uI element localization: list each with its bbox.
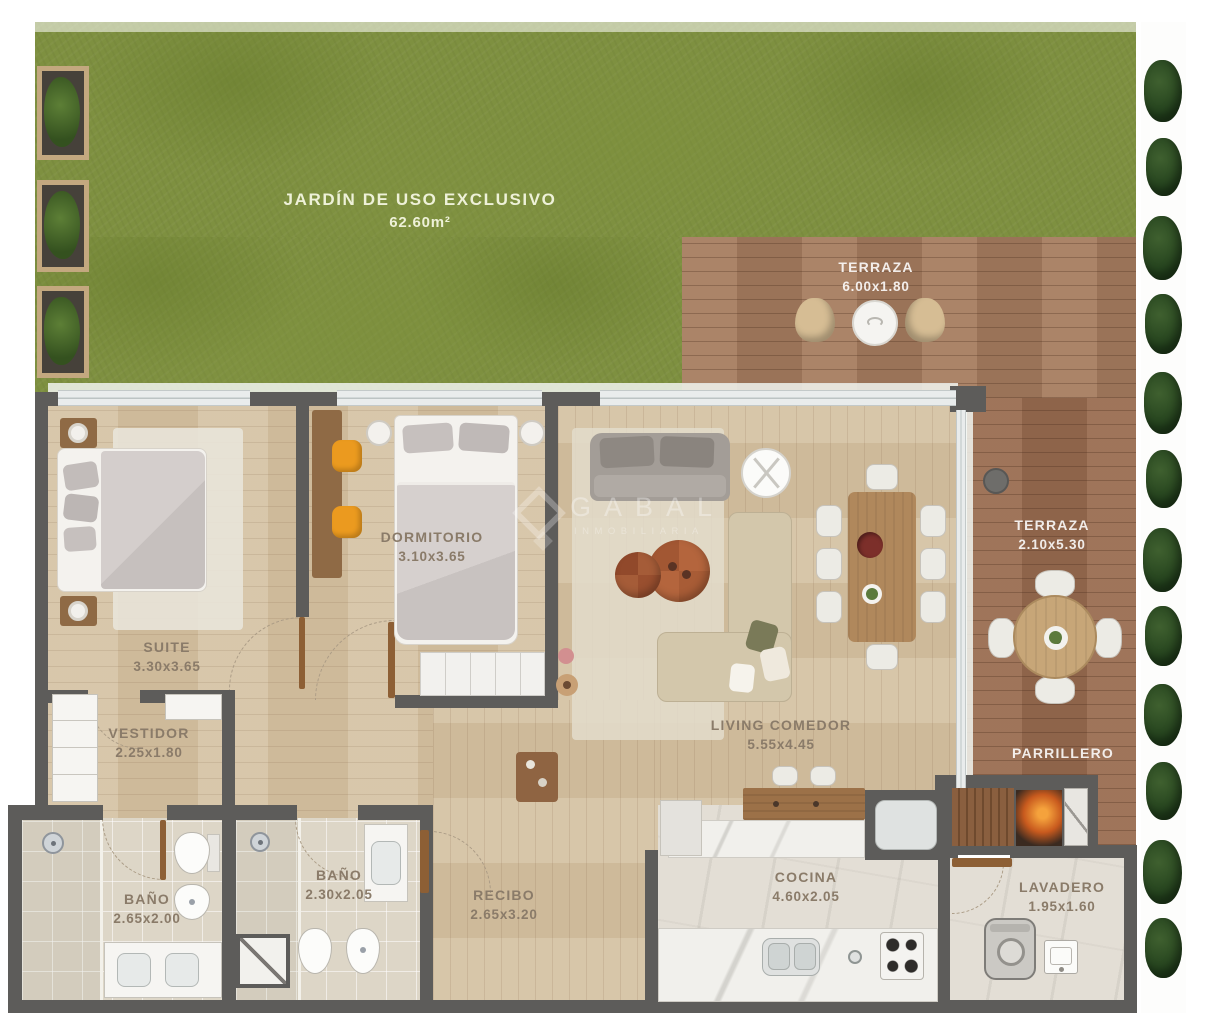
pouf-rug	[615, 552, 661, 598]
drain-dot	[1059, 967, 1064, 972]
room-label-cocina: COCINA 4.60x2.05	[772, 868, 839, 906]
dining-chair	[920, 548, 946, 580]
sink-basin	[768, 943, 790, 970]
shower-screen	[298, 818, 301, 1002]
throw-pillow	[729, 663, 756, 693]
washer-drum	[997, 938, 1025, 966]
plate	[862, 584, 882, 604]
dining-chair	[866, 464, 898, 490]
pouf-detail	[682, 570, 691, 579]
room-label-dormitorio: DORMITORIO 3.10x3.65	[381, 528, 484, 566]
nightstand	[60, 596, 97, 626]
nightstand	[60, 418, 97, 448]
sink-basin	[371, 841, 401, 885]
table-lamp	[68, 601, 88, 621]
outdoor-chair	[1035, 570, 1075, 598]
deck-chair	[795, 298, 835, 342]
room-label-vestidor: VESTIDOR 2.25x1.80	[108, 724, 189, 762]
bar-detail	[813, 801, 819, 807]
planter-box	[37, 180, 89, 272]
wall	[645, 850, 658, 1003]
door-leaf	[299, 617, 305, 689]
hedge-bush	[1143, 216, 1182, 280]
sofa-cushion	[659, 436, 714, 468]
vanity	[104, 942, 222, 998]
pillow	[63, 526, 97, 552]
bar-stool	[772, 766, 798, 786]
window	[337, 390, 542, 406]
door-leaf	[160, 820, 166, 880]
cooktop	[880, 932, 924, 980]
pillow	[63, 493, 100, 523]
drain-dot	[360, 947, 366, 953]
console-table	[516, 752, 558, 802]
wall	[222, 820, 236, 1000]
planter-shrub	[44, 77, 80, 147]
floor-plan: JARDÍN DE USO EXCLUSIVO 62.60m² TERRAZA …	[0, 0, 1216, 1024]
double-bed	[57, 448, 207, 592]
door-leaf	[420, 830, 429, 893]
wall	[8, 805, 22, 1013]
wall	[35, 392, 48, 812]
shower-detail	[258, 840, 263, 845]
laundry-tub	[875, 800, 937, 850]
duct-shaft	[236, 934, 290, 988]
room-label-parrillero: PARRILLERO	[1012, 744, 1114, 764]
room-label-living: LIVING COMEDOR 5.55x4.45	[711, 716, 851, 754]
breakfast-bar	[743, 788, 865, 820]
wall	[167, 805, 297, 820]
planter-box	[37, 286, 89, 378]
room-label-bano-suite: BAÑO 2.65x2.00	[113, 890, 180, 928]
room-label-recibo: RECIBO 2.65x3.20	[470, 886, 537, 924]
wardrobe	[420, 652, 545, 696]
closet-shelving	[52, 694, 98, 802]
desk-chair	[332, 506, 362, 538]
planter-shrub	[44, 191, 80, 259]
hedge-bush	[1146, 138, 1182, 196]
column	[983, 468, 1009, 494]
bar-detail	[773, 801, 779, 807]
grill-firebox	[1016, 790, 1062, 846]
dining-table	[848, 492, 916, 642]
wall	[1010, 845, 1136, 858]
hedge-bush	[1146, 762, 1182, 820]
garden-area	[35, 22, 1136, 237]
wall	[8, 1000, 1136, 1013]
wall	[296, 403, 309, 617]
grill-slats	[952, 788, 1014, 846]
room-label-terraza-lateral: TERRAZA 2.10x5.30	[1014, 516, 1089, 554]
coffee-table	[741, 448, 791, 498]
shower-head	[42, 832, 64, 854]
kitchen-sink	[762, 938, 820, 976]
shower-detail	[51, 841, 56, 846]
wall	[395, 695, 558, 708]
plant	[1049, 631, 1062, 644]
wall	[1124, 845, 1137, 1013]
wall	[358, 805, 433, 820]
room-label-jardin: JARDÍN DE USO EXCLUSIVO 62.60m²	[284, 188, 557, 233]
sink-basin	[165, 953, 199, 987]
decor-detail	[563, 681, 571, 689]
sofa-cushion	[599, 436, 654, 469]
watermark-subtitle: INMOBILIARIA	[574, 526, 704, 537]
hedge-bush	[1144, 684, 1182, 746]
pouf-detail	[668, 562, 677, 571]
dining-chair	[816, 591, 842, 623]
desk	[312, 410, 342, 578]
garden-area	[35, 237, 682, 398]
door-leaf	[952, 858, 1012, 867]
decor-item	[556, 674, 578, 696]
watermark-brand: GABAL	[570, 492, 725, 523]
washer-panel	[990, 924, 1030, 932]
pillow	[62, 461, 100, 492]
nightstand	[366, 420, 392, 446]
grill-side-panel	[1064, 788, 1088, 846]
dining-chair	[816, 505, 842, 537]
hedge-bush	[1144, 60, 1182, 122]
sink-basin	[117, 953, 151, 987]
window-sill	[966, 410, 973, 788]
room-label-terraza-superior: TERRAZA 6.00x1.80	[838, 258, 913, 296]
room-label-lavadero: LAVADERO 1.95x1.60	[1019, 878, 1105, 916]
dining-chair	[816, 548, 842, 580]
dining-chair	[866, 644, 898, 670]
hedge-bush	[1146, 450, 1182, 508]
table-detail	[867, 317, 883, 327]
table-lamp	[68, 423, 88, 443]
window	[58, 390, 250, 406]
outdoor-chair	[1094, 618, 1122, 658]
duvet	[101, 451, 205, 589]
shower-head	[250, 832, 270, 852]
wall	[222, 690, 235, 820]
garden-fence-edge	[35, 22, 1136, 32]
decor-item	[526, 760, 535, 769]
hedge-bush	[1143, 528, 1182, 592]
room-label-suite: SUITE 3.30x3.65	[133, 638, 200, 676]
faucet	[848, 950, 862, 964]
outdoor-chair	[1035, 676, 1075, 704]
hedge-bush	[1145, 606, 1182, 666]
fruit-bowl	[857, 532, 883, 558]
hedge-bush	[1144, 372, 1182, 434]
plant	[866, 588, 878, 600]
closet-dresser	[165, 694, 222, 720]
desk-chair	[332, 440, 362, 472]
hedge-bush	[1143, 840, 1182, 904]
room-label-bano-segundo: BAÑO 2.30x2.05	[305, 866, 372, 904]
sofa	[590, 433, 730, 501]
washing-machine	[984, 918, 1036, 980]
nightstand	[519, 420, 545, 446]
deck-chair	[905, 298, 945, 342]
bar-stool	[810, 766, 836, 786]
hedge-bush	[1145, 294, 1182, 354]
deck-side-table	[852, 300, 898, 346]
hedge-bush	[1145, 918, 1182, 978]
pillow	[458, 422, 510, 453]
laundry-sink	[1044, 940, 1078, 974]
planter-box	[37, 66, 89, 160]
dining-chair	[920, 505, 946, 537]
outdoor-table	[1013, 595, 1097, 679]
wall	[938, 858, 950, 1003]
window	[600, 390, 956, 406]
fridge	[660, 800, 702, 856]
shower-screen	[100, 818, 103, 1002]
wall	[545, 403, 558, 695]
sink-basin	[794, 943, 816, 970]
decor-item	[558, 648, 574, 664]
wall	[22, 805, 103, 820]
decor-item	[538, 778, 547, 787]
sink-basin	[1050, 947, 1072, 965]
dining-chair	[920, 591, 946, 623]
pillow	[402, 422, 454, 453]
window-glass-wall	[956, 410, 966, 788]
planter-shrub	[44, 297, 80, 365]
wall	[950, 845, 958, 858]
plate	[1044, 626, 1068, 650]
drain-dot	[189, 899, 195, 905]
outdoor-chair	[988, 618, 1016, 658]
